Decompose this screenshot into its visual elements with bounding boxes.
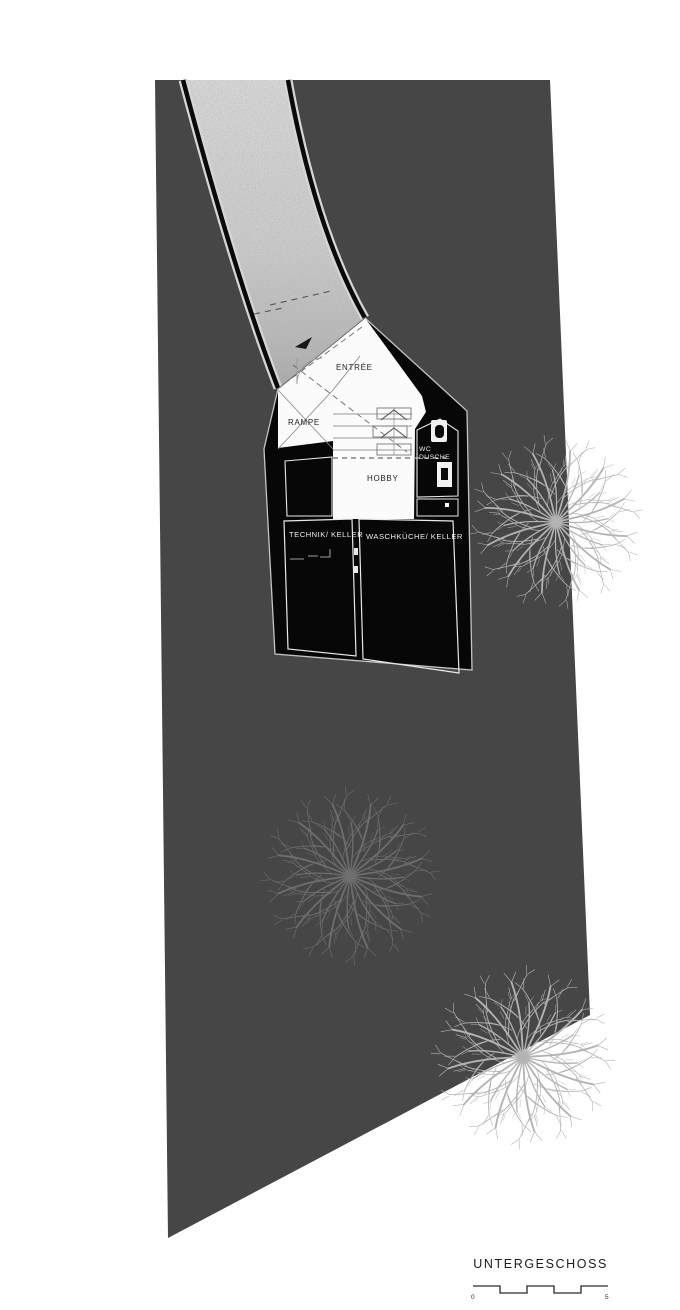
floor-plan-drawing: ENTRÉE RAMPE HOBBY WC DUSCHE TECHNIK/ KE… [0,0,680,1310]
scale-end-label: 5 [605,1294,609,1301]
plan-title: UNTERGESCHOSS [473,1257,608,1271]
room-label-rampe: RAMPE [288,418,320,427]
title-block: UNTERGESCHOSS 0 5 [471,1257,609,1301]
room-label-waschkueche: WASCHKÜCHE/ KELLER [366,532,463,541]
scale-start-label: 0 [471,1294,475,1301]
room-label-dusche: DUSCHE [419,454,450,461]
room-label-entree: ENTRÉE [336,363,373,372]
underground-floor-plan-sheet: ENTRÉE RAMPE HOBBY WC DUSCHE TECHNIK/ KE… [0,0,680,1310]
room-label-hobby: HOBBY [367,474,399,483]
scale-bar: 0 5 [471,1286,609,1301]
room-label-technik: TECHNIK/ KELLER [289,530,363,539]
room-label-wc: WC [419,446,431,453]
